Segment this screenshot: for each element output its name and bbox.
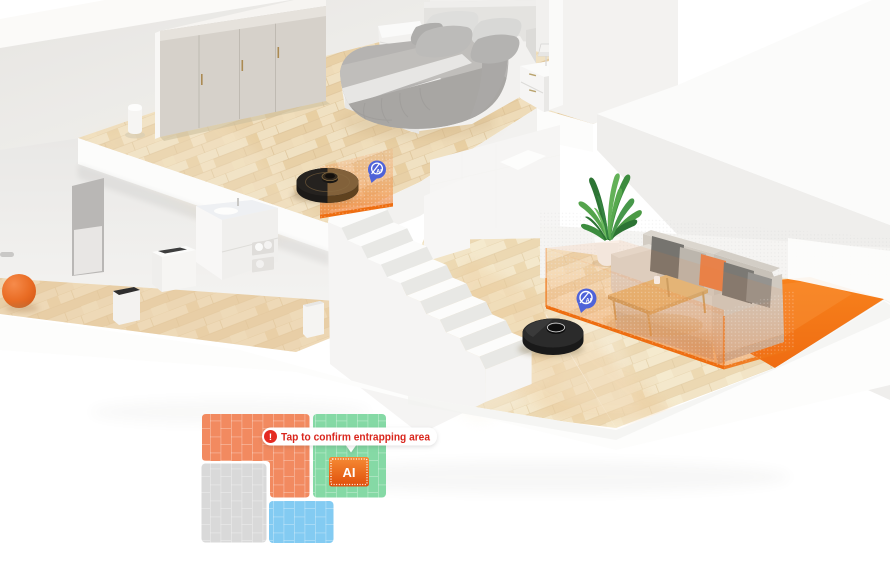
svg-text:AI: AI xyxy=(343,465,356,480)
svg-text:Tap to confirm entrapping area: Tap to confirm entrapping area xyxy=(281,432,431,444)
svg-text:!: ! xyxy=(269,432,272,443)
svg-text:AI: AI xyxy=(376,169,382,175)
svg-text:AI: AI xyxy=(586,299,592,305)
